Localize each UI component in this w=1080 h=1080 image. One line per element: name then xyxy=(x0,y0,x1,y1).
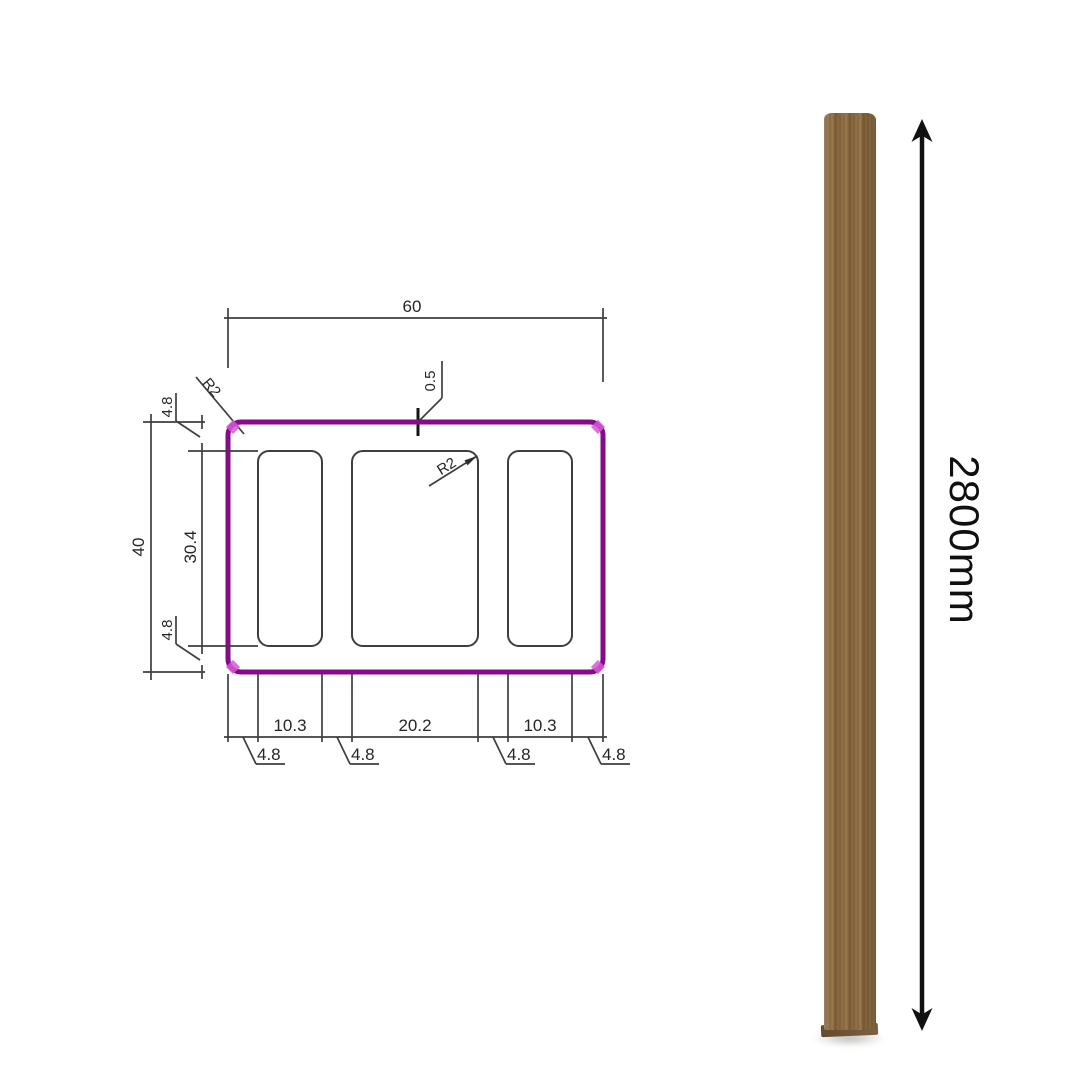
length-arrow xyxy=(912,119,933,1031)
leader-line xyxy=(176,421,200,437)
callout-groove-depth: 0.5 xyxy=(418,361,442,436)
callout-label-groove-depth: 0.5 xyxy=(422,371,439,392)
dim-left-inner: 30.4 xyxy=(181,415,258,679)
dim-label-left-inner: 30.4 xyxy=(181,530,200,563)
dim-label-wall-1: 4.8 xyxy=(257,745,281,764)
canvas: 60 R2 0.5 R2 xyxy=(0,0,1080,1080)
dim-label-left-wall-top: 4.8 xyxy=(159,397,176,418)
dim-label-top-width: 60 xyxy=(403,297,422,316)
dim-label-chamber-middle: 20.2 xyxy=(398,716,431,735)
dim-left-wall-bottom: 4.8 xyxy=(159,616,200,660)
leader-line xyxy=(243,737,256,764)
dim-bottom-wall-2: 4.8 xyxy=(337,737,379,764)
dim-label-chamber-right: 10.3 xyxy=(523,716,556,735)
dim-bottom-row: 10.3 20.2 10.3 4.8 4.8 4.8 4.8 xyxy=(224,674,630,764)
dim-label-left-wall-bottom: 4.8 xyxy=(159,620,176,641)
dim-label-chamber-left: 10.3 xyxy=(273,716,306,735)
callout-inner-radius: R2 xyxy=(429,454,477,486)
chamber-right xyxy=(508,451,572,646)
dim-label-wall-4: 4.8 xyxy=(602,745,626,764)
leader-line xyxy=(418,398,442,422)
dim-top-width: 60 xyxy=(224,297,607,382)
leader-line xyxy=(588,737,601,764)
dim-bottom-wall-4: 4.8 xyxy=(588,737,630,764)
profile-outer-wall xyxy=(228,422,603,672)
callout-label-inner-radius: R2 xyxy=(434,454,459,479)
profile-cross-section xyxy=(226,420,605,674)
leader-line xyxy=(337,737,350,764)
callout-label-outer-radius: R2 xyxy=(199,375,224,401)
dim-label-left-overall: 40 xyxy=(129,538,148,557)
leader-arrowhead xyxy=(464,456,477,465)
technical-drawing: 60 R2 0.5 R2 xyxy=(0,0,1080,1080)
batten-length-label: 2800mm xyxy=(941,455,988,624)
dim-label-wall-2: 4.8 xyxy=(351,745,375,764)
dim-left-wall-top: 4.8 xyxy=(159,393,200,437)
chamber-left xyxy=(258,451,322,646)
dim-label-wall-3: 4.8 xyxy=(507,745,531,764)
leader-line xyxy=(493,737,506,764)
dim-bottom-wall-3: 4.8 xyxy=(493,737,535,764)
chamber-middle xyxy=(352,451,478,646)
dim-bottom-wall-1: 4.8 xyxy=(243,737,285,764)
